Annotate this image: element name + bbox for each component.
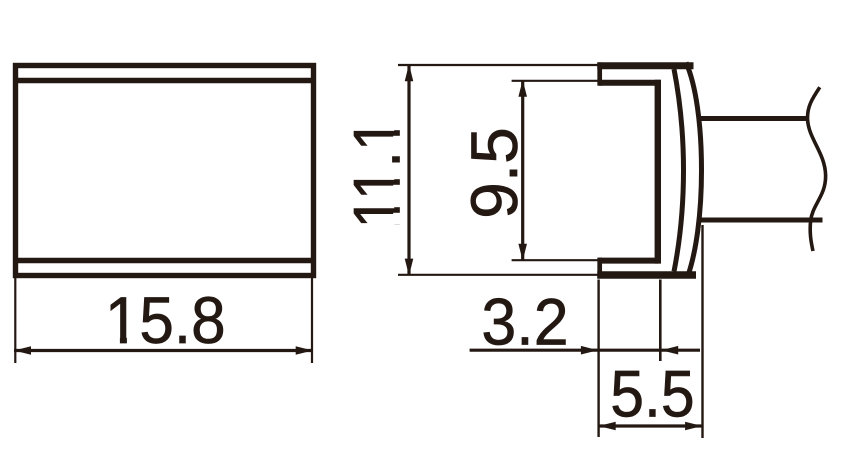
svg-text:3.2: 3.2	[481, 285, 568, 359]
svg-text:15.8: 15.8	[105, 283, 226, 357]
svg-text:9.5: 9.5	[457, 127, 531, 219]
svg-text:11.1: 11.1	[340, 119, 414, 229]
svg-text:5.5: 5.5	[610, 358, 694, 431]
